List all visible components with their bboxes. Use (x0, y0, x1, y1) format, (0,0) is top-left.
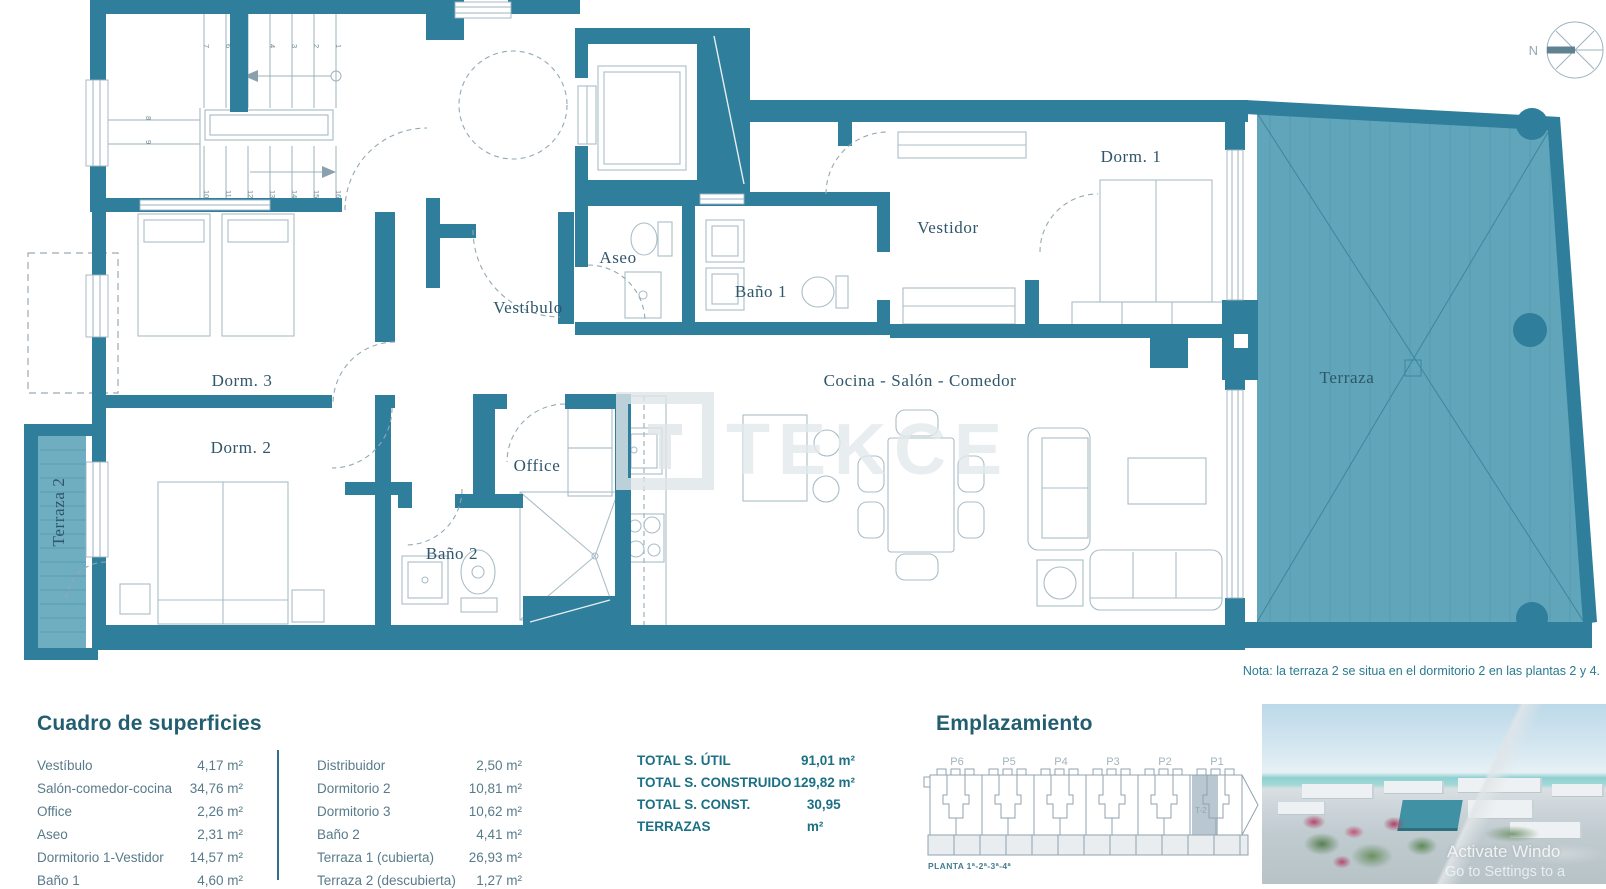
room-area: 4,17 m² (197, 754, 243, 777)
table-row: Terraza 2 (descubierta) 1,27 m² (317, 869, 522, 889)
portal-labels: P6 P5 P4 P3 P2 P1 (950, 756, 1223, 768)
total-label: TOTAL S. ÚTIL (637, 750, 731, 772)
staircase: 1 2 3 4 6 7 8 9 10 11 12 13 14 15 16 (106, 14, 343, 198)
portal-label: P4 (1054, 756, 1067, 768)
stair-num: 8 (144, 116, 153, 120)
highlighted-unit (1192, 775, 1218, 835)
fixtures-aseo (625, 222, 672, 318)
room-name: Baño 1 (37, 869, 80, 889)
total-value: 129,82 m² (793, 772, 855, 794)
floor-plan-page: 1 2 3 4 6 7 8 9 10 11 12 13 14 15 16 (0, 0, 1606, 889)
table-row: Office 2,26 m² (37, 800, 243, 823)
plan-note: Nota: la terraza 2 se situa en el dormit… (1243, 664, 1600, 678)
total-row: TOTAL S. CONST. TERRAZAS 30,95 m² (637, 794, 855, 838)
room-name: Baño 2 (317, 823, 360, 846)
room-area: 4,60 m² (197, 869, 243, 889)
label-terraza: Terraza (1320, 368, 1375, 387)
room-name: Terraza 2 (descubierta) (317, 869, 456, 889)
room-area: 26,93 m² (469, 846, 522, 869)
elevator (578, 66, 686, 170)
label-dorm1: Dorm. 1 (1101, 147, 1162, 166)
label-vestidor: Vestidor (917, 218, 978, 237)
stair-num: 14 (290, 190, 299, 198)
room-name: Distribuidor (317, 754, 385, 777)
stair-num: 1 (334, 44, 343, 48)
room-name: Dormitorio 2 (317, 777, 391, 800)
total-label: TOTAL S. CONST. TERRAZAS (637, 794, 807, 838)
label-office: Office (514, 456, 561, 475)
label-bano2: Baño 2 (426, 544, 478, 563)
table-row: Terraza 1 (cubierta) 26,93 m² (317, 846, 522, 869)
totals-panel: TOTAL S. ÚTIL 91,01 m² TOTAL S. CONSTRUI… (637, 750, 855, 838)
label-aseo: Aseo (599, 248, 636, 267)
room-name: Aseo (37, 823, 68, 846)
emplazamiento-diagram: P6 P5 P4 P3 P2 P1 (905, 740, 1265, 875)
room-name: Terraza 1 (cubierta) (317, 846, 434, 869)
label-bano1: Baño 1 (735, 282, 787, 301)
room-name: Vestíbulo (37, 754, 93, 777)
terrace-column (1513, 313, 1547, 347)
stair-num: 13 (268, 190, 277, 198)
room-area: 34,76 m² (190, 777, 243, 800)
total-label: TOTAL S. CONSTRUIDO (637, 772, 792, 794)
stair-num: 3 (290, 44, 299, 48)
terrace-column (1516, 108, 1548, 140)
total-value: 91,01 m² (801, 750, 855, 772)
stair-num: 15 (312, 190, 321, 198)
furniture-dorm1 (1072, 180, 1224, 328)
room-area: 2,26 m² (197, 800, 243, 823)
emplazamiento-title: Emplazamiento (936, 712, 1093, 736)
table-row: Dormitorio 2 10,81 m² (317, 777, 522, 800)
label-vestibulo: Vestíbulo (493, 298, 563, 317)
floor-plan: 1 2 3 4 6 7 8 9 10 11 12 13 14 15 16 (0, 0, 1606, 662)
aerial-photo: Activate Windo Go to Settings to a (1262, 704, 1606, 884)
total-row: TOTAL S. CONSTRUIDO 129,82 m² (637, 772, 855, 794)
total-value: 30,95 m² (807, 794, 855, 838)
stair-num: 10 (202, 190, 211, 198)
room-name: Dormitorio 1-Vestidor (37, 846, 164, 869)
table-row: Vestíbulo 4,17 m² (37, 754, 243, 777)
walls-layer (90, 0, 1258, 650)
stair-num: 12 (246, 190, 255, 198)
compass-north-label: N (1529, 43, 1538, 58)
stair-num: 11 (224, 190, 233, 198)
windows-activate-watermark: Activate Windo (1447, 842, 1560, 862)
table-row: Dormitorio 3 10,62 m² (317, 800, 522, 823)
room-area: 2,50 m² (476, 754, 522, 777)
table-row: Distribuidor 2,50 m² (317, 754, 522, 777)
stair-num: 4 (268, 44, 277, 48)
terrace-main (1245, 100, 1597, 648)
stair-num: 2 (312, 44, 321, 48)
label-dorm2: Dorm. 2 (211, 438, 272, 457)
furniture-dorm3 (138, 214, 294, 336)
room-area: 14,57 m² (190, 846, 243, 869)
room-area: 10,81 m² (469, 777, 522, 800)
highlighted-unit-label: T-2 (1195, 806, 1207, 815)
room-area: 1,27 m² (476, 869, 522, 889)
room-name: Dormitorio 3 (317, 800, 391, 823)
table-row: Baño 2 4,41 m² (317, 823, 522, 846)
surfaces-right-column: Distribuidor 2,50 m² Dormitorio 2 10,81 … (317, 754, 522, 889)
table-row: Baño 1 4,60 m² (37, 869, 243, 889)
windows-layer (86, 2, 1243, 598)
table-row: Dormitorio 1-Vestidor 14,57 m² (37, 846, 243, 869)
portal-label: P5 (1002, 756, 1015, 768)
room-name: Office (37, 800, 72, 823)
room-area: 10,62 m² (469, 800, 522, 823)
table-divider (277, 750, 279, 880)
table-row: Salón-comedor-cocina 34,76 m² (37, 777, 243, 800)
label-terraza2: Terraza 2 (49, 478, 68, 547)
total-row: TOTAL S. ÚTIL 91,01 m² (637, 750, 855, 772)
room-area: 2,31 m² (197, 823, 243, 846)
watermark-text: TEKCE (726, 410, 1010, 490)
surfaces-title: Cuadro de superficies (37, 712, 262, 736)
terrace-column (1516, 602, 1548, 634)
brand-watermark: TEKCE (622, 398, 1010, 490)
stair-num: 9 (144, 140, 153, 144)
emplazamiento-caption: PLANTA 1ª-2ª-3ª-4ª (928, 861, 1011, 871)
stair-num: 7 (202, 44, 211, 48)
furniture-dorm2 (120, 482, 324, 624)
furniture-living (1028, 428, 1222, 610)
compass: N (1529, 22, 1603, 78)
room-area: 4,41 m² (476, 823, 522, 846)
portal-label: P3 (1106, 756, 1119, 768)
windows-activate-watermark-line2: Go to Settings to a (1445, 864, 1565, 880)
portal-label: P6 (950, 756, 963, 768)
portal-label: P2 (1158, 756, 1171, 768)
stair-num: 16 (334, 190, 343, 198)
table-row: Aseo 2,31 m² (37, 823, 243, 846)
portal-label: P1 (1210, 756, 1223, 768)
room-name: Salón-comedor-cocina (37, 777, 172, 800)
label-dorm3: Dorm. 3 (212, 371, 273, 390)
label-cocina-salon-comedor: Cocina - Salón - Comedor (824, 371, 1017, 390)
surfaces-left-column: Vestíbulo 4,17 m² Salón-comedor-cocina 3… (37, 754, 243, 889)
